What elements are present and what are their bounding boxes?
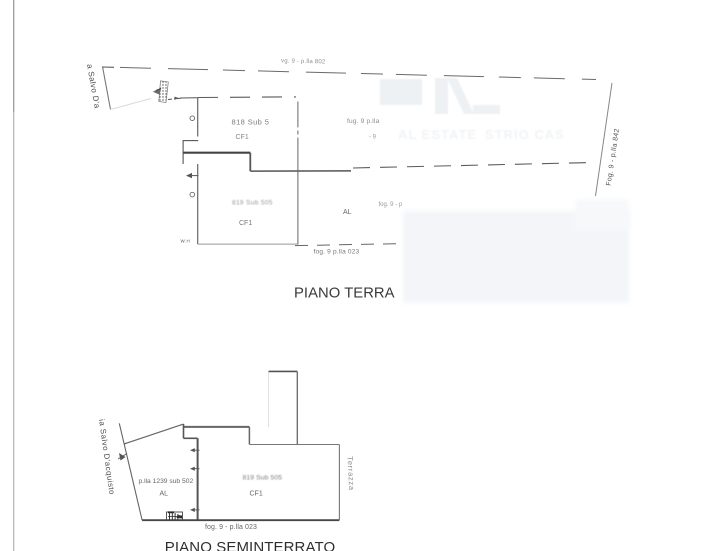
svg-text:AL: AL: [160, 490, 169, 497]
svg-text:- 9: - 9: [369, 135, 377, 141]
svg-text:Terrazza: Terrazza: [346, 456, 357, 491]
svg-text:819 Sub 505: 819 Sub 505: [243, 474, 283, 481]
svg-text:CF1: CF1: [239, 220, 252, 227]
svg-text:CF1: CF1: [250, 490, 263, 497]
svg-text:fog. 9 p.lla 023: fog. 9 p.lla 023: [314, 249, 360, 256]
svg-text:fog. 9 - p.lla 023: fog. 9 - p.lla 023: [205, 524, 257, 531]
svg-text:AL ESTATE: AL ESTATE: [398, 127, 477, 142]
svg-text:AL: AL: [343, 209, 352, 216]
svg-text:fug. 9 p.lla: fug. 9 p.lla: [347, 118, 380, 125]
svg-text:vg. 9 - p.lla 802: vg. 9 - p.lla 802: [281, 58, 326, 65]
svg-text:CF1: CF1: [236, 134, 249, 141]
svg-text:PIANO TERRA: PIANO TERRA: [294, 286, 395, 302]
svg-text:W.H: W.H: [181, 239, 191, 244]
svg-text:STRIO CAS: STRIO CAS: [485, 127, 565, 142]
svg-text:fog. 9 - p: fog. 9 - p: [379, 202, 403, 208]
svg-text:PIANO SEMINTERRATO: PIANO SEMINTERRATO: [165, 539, 335, 551]
svg-text:818 Sub 5: 818 Sub 5: [232, 118, 270, 127]
svg-text:p.lla 1239 sub 502: p.lla 1239 sub 502: [139, 478, 194, 485]
svg-text:819 Sub 505: 819 Sub 505: [232, 200, 273, 207]
